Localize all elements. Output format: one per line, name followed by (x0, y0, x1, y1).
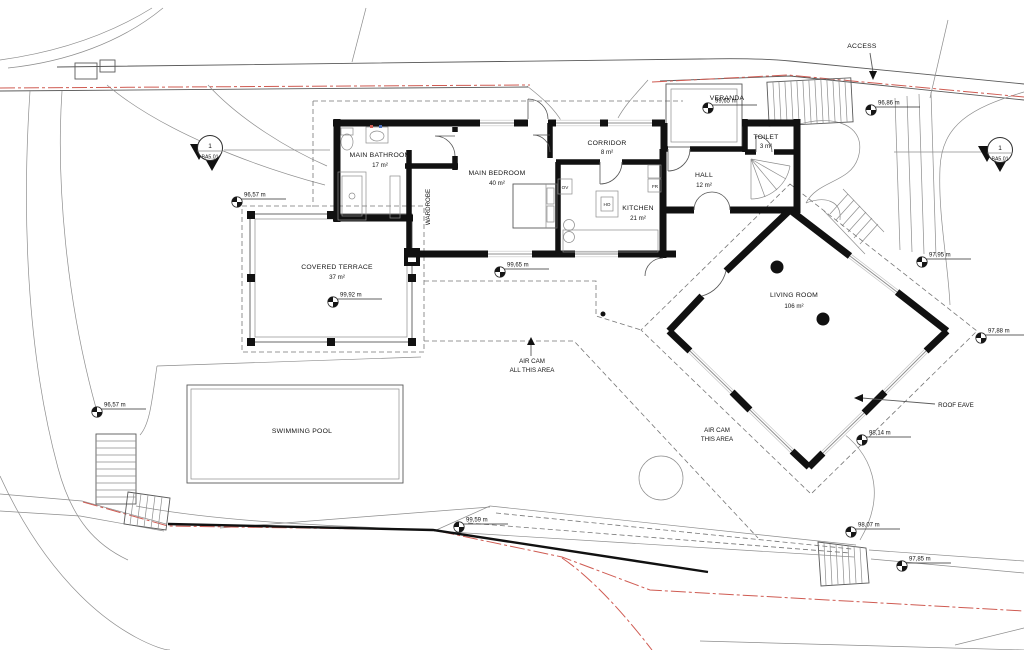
elevation-value: 96,57 m (104, 403, 126, 409)
elevation-marker: 97,95 m (917, 253, 971, 268)
living-room-wing (645, 210, 947, 467)
swimming-pool (136, 385, 433, 530)
elevation-marker: 99,65 m (495, 263, 549, 278)
house-walls (333, 99, 800, 258)
elevation-marker: 98,14 m (857, 431, 911, 446)
room-label-covered-terrace: COVERED TERRACE (301, 264, 373, 271)
stairs-access-top (767, 78, 853, 126)
room-area-kitchen: 21 m² (630, 215, 646, 222)
elevation-marker: 98,07 m (846, 523, 900, 538)
elevation-value: 98,07 m (858, 523, 880, 529)
room-label-main-bedroom: MAIN BEDROOM (468, 170, 525, 177)
room-area-corridor: 8 m² (601, 149, 613, 156)
elevation-marker: 96,57 m (92, 403, 146, 418)
room-label-living-room: LIVING ROOM (770, 292, 818, 299)
elevation-value: 96,86 m (878, 101, 900, 107)
elevation-value: 97,88 m (988, 329, 1010, 335)
veranda (666, 84, 742, 147)
elevation-value: 96,57 m (244, 193, 266, 199)
elevation-marker: 96,86 m (866, 101, 920, 116)
appliance-label-hob: HO (604, 202, 611, 207)
annotation-roof-eave: ROOF EAVE (938, 402, 974, 409)
room-label-toilet: TOILET (753, 134, 778, 141)
annotation-air-cam-this-2: THIS AREA (701, 436, 734, 443)
elevation-marker: 99,59 m (454, 518, 508, 533)
section-marker-left: 1 BA5.01 (190, 136, 330, 172)
room-label-wardrobe: WARDROBE (425, 189, 432, 225)
section-marker-right: 1 BA5.01 (894, 138, 1013, 173)
appliance-label-oven: OV (562, 185, 570, 190)
site-plan-drawing: MAIN BATHROOM 17 m² WARDROBE MAIN BEDROO… (0, 0, 1024, 650)
annotation-air-cam-all-1: AIR CAM (519, 358, 545, 365)
stairs-walkway (818, 542, 869, 586)
room-area-main-bathroom: 17 m² (372, 162, 388, 169)
annotation-air-cam-all-2: ALL THIS AREA (510, 367, 556, 374)
section-number: 1 (208, 143, 212, 150)
elevation-value: 99,65 m (507, 263, 529, 269)
room-area-living-room: 106 m² (784, 303, 803, 310)
room-label-main-bathroom: MAIN BATHROOM (350, 152, 411, 159)
appliance-label-fridge: FR (652, 184, 659, 189)
section-sheet: BA5.01 (201, 155, 218, 161)
room-area-toilet: 3 m² (760, 143, 772, 150)
site-plan-sheet: MAIN BATHROOM 17 m² WARDROBE MAIN BEDROO… (0, 0, 1024, 650)
room-area-main-bedroom: 40 m² (489, 180, 505, 187)
section-number: 1 (998, 145, 1002, 152)
annotation-air-cam-this-1: AIR CAM (704, 427, 730, 434)
elevation-value: 97,85 m (909, 557, 931, 563)
elevation-value: 98,14 m (869, 431, 891, 437)
annotation-access: ACCESS (847, 43, 877, 50)
elevation-marker: 97,88 m (976, 329, 1024, 344)
room-label-swimming-pool: SWIMMING POOL (272, 428, 332, 435)
room-label-kitchen: KITCHEN (622, 205, 654, 212)
elevation-value: 99,59 m (466, 518, 488, 524)
bed (513, 184, 557, 228)
elevation-marker: 99,92 m (328, 293, 382, 308)
room-label-corridor: CORRIDOR (587, 140, 626, 147)
room-area-covered-terrace: 37 m² (329, 274, 345, 281)
elevation-value: 99,92 m (340, 293, 362, 299)
spiral-stair (751, 159, 790, 199)
room-label-hall: HALL (695, 172, 713, 179)
room-area-hall: 12 m² (696, 182, 712, 189)
stairs-pool-left (96, 434, 136, 504)
elevation-value: 97,95 m (929, 253, 951, 259)
section-sheet: BA5.01 (991, 157, 1008, 163)
elevation-marker: 96,57 m (232, 193, 286, 208)
walkway (168, 506, 1024, 573)
elevation-value: 99,65 m (715, 99, 737, 105)
